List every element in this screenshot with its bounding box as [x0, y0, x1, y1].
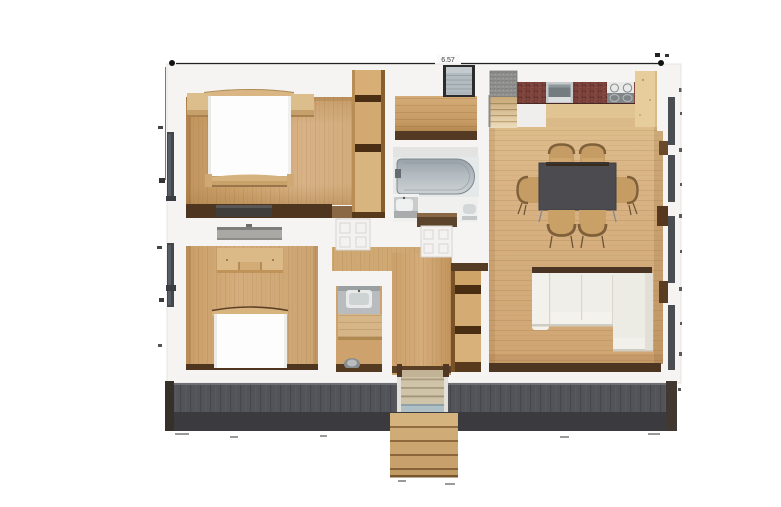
svg-text:6.57: 6.57 [441, 57, 455, 64]
